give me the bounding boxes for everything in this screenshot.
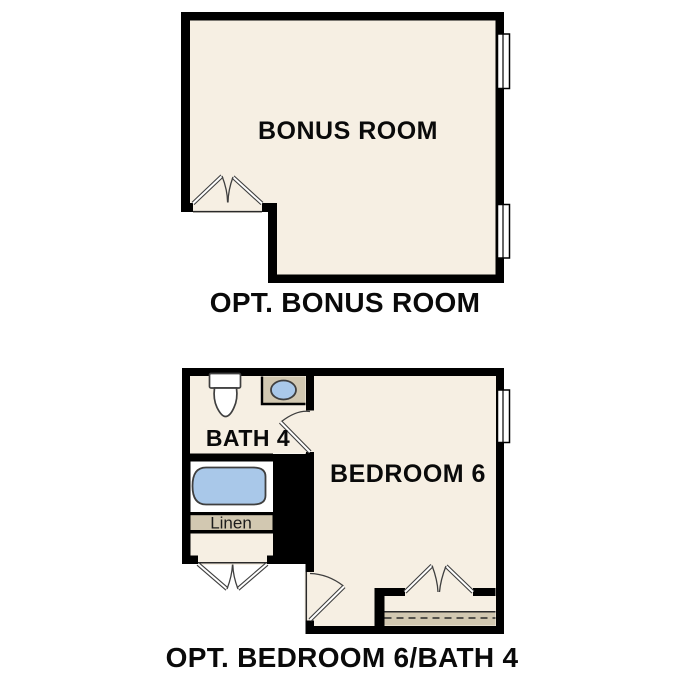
left-wall xyxy=(182,368,191,564)
bedroom6-bath4-plan: BATH 4 BEDROOM 6 Linen xyxy=(182,368,510,634)
closet-jamb-left xyxy=(375,588,406,596)
closet-jamb-right xyxy=(473,588,496,596)
vestibule-floor xyxy=(191,534,274,556)
closet-shelf xyxy=(385,613,496,626)
bonus-room-plan: BONUS ROOM xyxy=(181,12,510,283)
wall-mass xyxy=(273,454,314,564)
sink-basin xyxy=(271,381,296,400)
bath4-label: BATH 4 xyxy=(206,425,290,451)
bonus-floor xyxy=(190,21,496,275)
window-icon xyxy=(498,390,510,443)
window-icon xyxy=(498,205,510,259)
bottom-wall xyxy=(306,626,505,635)
bonus-room-label: BONUS ROOM xyxy=(258,117,438,145)
window-icon xyxy=(498,34,510,89)
floorplan-page: BONUS ROOM OPT. BONUS ROOM xyxy=(0,0,687,687)
bathtub-icon xyxy=(193,468,266,505)
tub-top-wall xyxy=(190,453,273,462)
bonus-plan-caption: OPT. BONUS ROOM xyxy=(210,287,481,318)
floorplan-drawing: BONUS ROOM OPT. BONUS ROOM xyxy=(0,0,687,687)
linen-label: Linen xyxy=(210,514,252,533)
double-door-icon xyxy=(198,564,267,589)
sink-vanity-icon xyxy=(262,377,306,405)
bedroom6-bath4-caption: OPT. BEDROOM 6/BATH 4 xyxy=(166,642,519,673)
bedroom6-label: BEDROOM 6 xyxy=(330,460,486,488)
